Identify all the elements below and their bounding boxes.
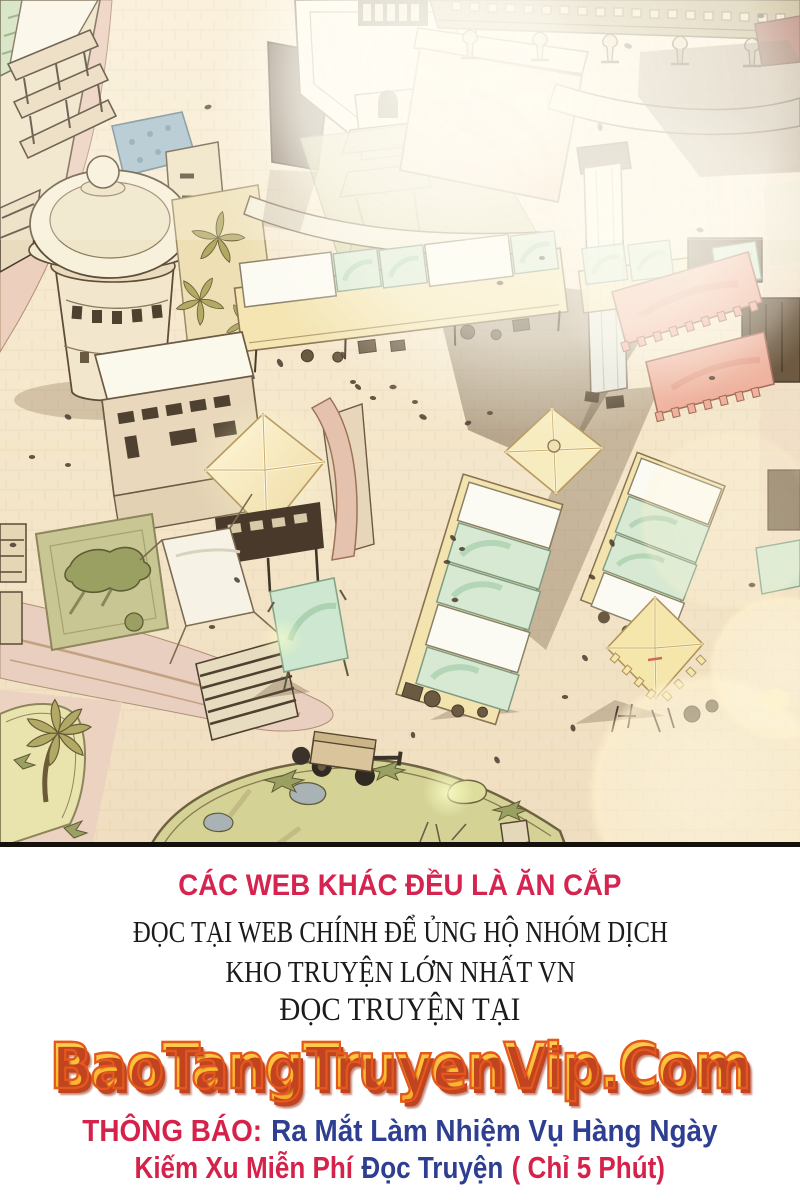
repo-line: KHO TRUYỆN LỚN NHẤT VN [0, 952, 800, 992]
comic-panel [0, 0, 800, 847]
announcement-text: Ra Mắt Làm Nhiệm Vụ Hàng Ngày [271, 1113, 717, 1148]
site-name: BaoTangTruyenVip.Com [0, 1024, 800, 1110]
comic-page: CÁC WEB KHÁC ĐỀU LÀ ĂN CẮP ĐỌC TẠI WEB C… [0, 0, 800, 1200]
promo-line: Kiếm Xu Miễn PhíĐọc Truyện( Chỉ 5 Phút) [0, 1147, 800, 1189]
support-line: ĐỌC TẠI WEB CHÍNH ĐỂ ỦNG HỘ NHÓM DỊCH [0, 912, 800, 952]
announcement-label: THÔNG BÁO: [82, 1113, 262, 1148]
repo-text: KHO TRUYỆN LỚN NHẤT VN [225, 952, 575, 992]
warning-line: CÁC WEB KHÁC ĐỀU LÀ ĂN CẮP [0, 866, 800, 906]
warning-text: CÁC WEB KHÁC ĐỀU LÀ ĂN CẮP [178, 866, 621, 906]
promo-part1: Kiếm Xu Miễn Phí [135, 1150, 353, 1185]
market-plaza-illustration [0, 0, 800, 847]
promo-part2: Đọc Truyện [362, 1150, 504, 1185]
palm-tree [0, 699, 91, 847]
support-text: ĐỌC TẠI WEB CHÍNH ĐỂ ỦNG HỘ NHÓM DỊCH [132, 912, 667, 952]
promo-part3: ( Chỉ 5 Phút) [512, 1150, 665, 1185]
announcement-line: THÔNG BÁO:Ra Mắt Làm Nhiệm Vụ Hàng Ngày [0, 1110, 800, 1152]
garden-square [36, 514, 168, 650]
site-name-text: BaoTangTruyenVip.Com [50, 1024, 750, 1110]
panel-border [0, 842, 800, 847]
